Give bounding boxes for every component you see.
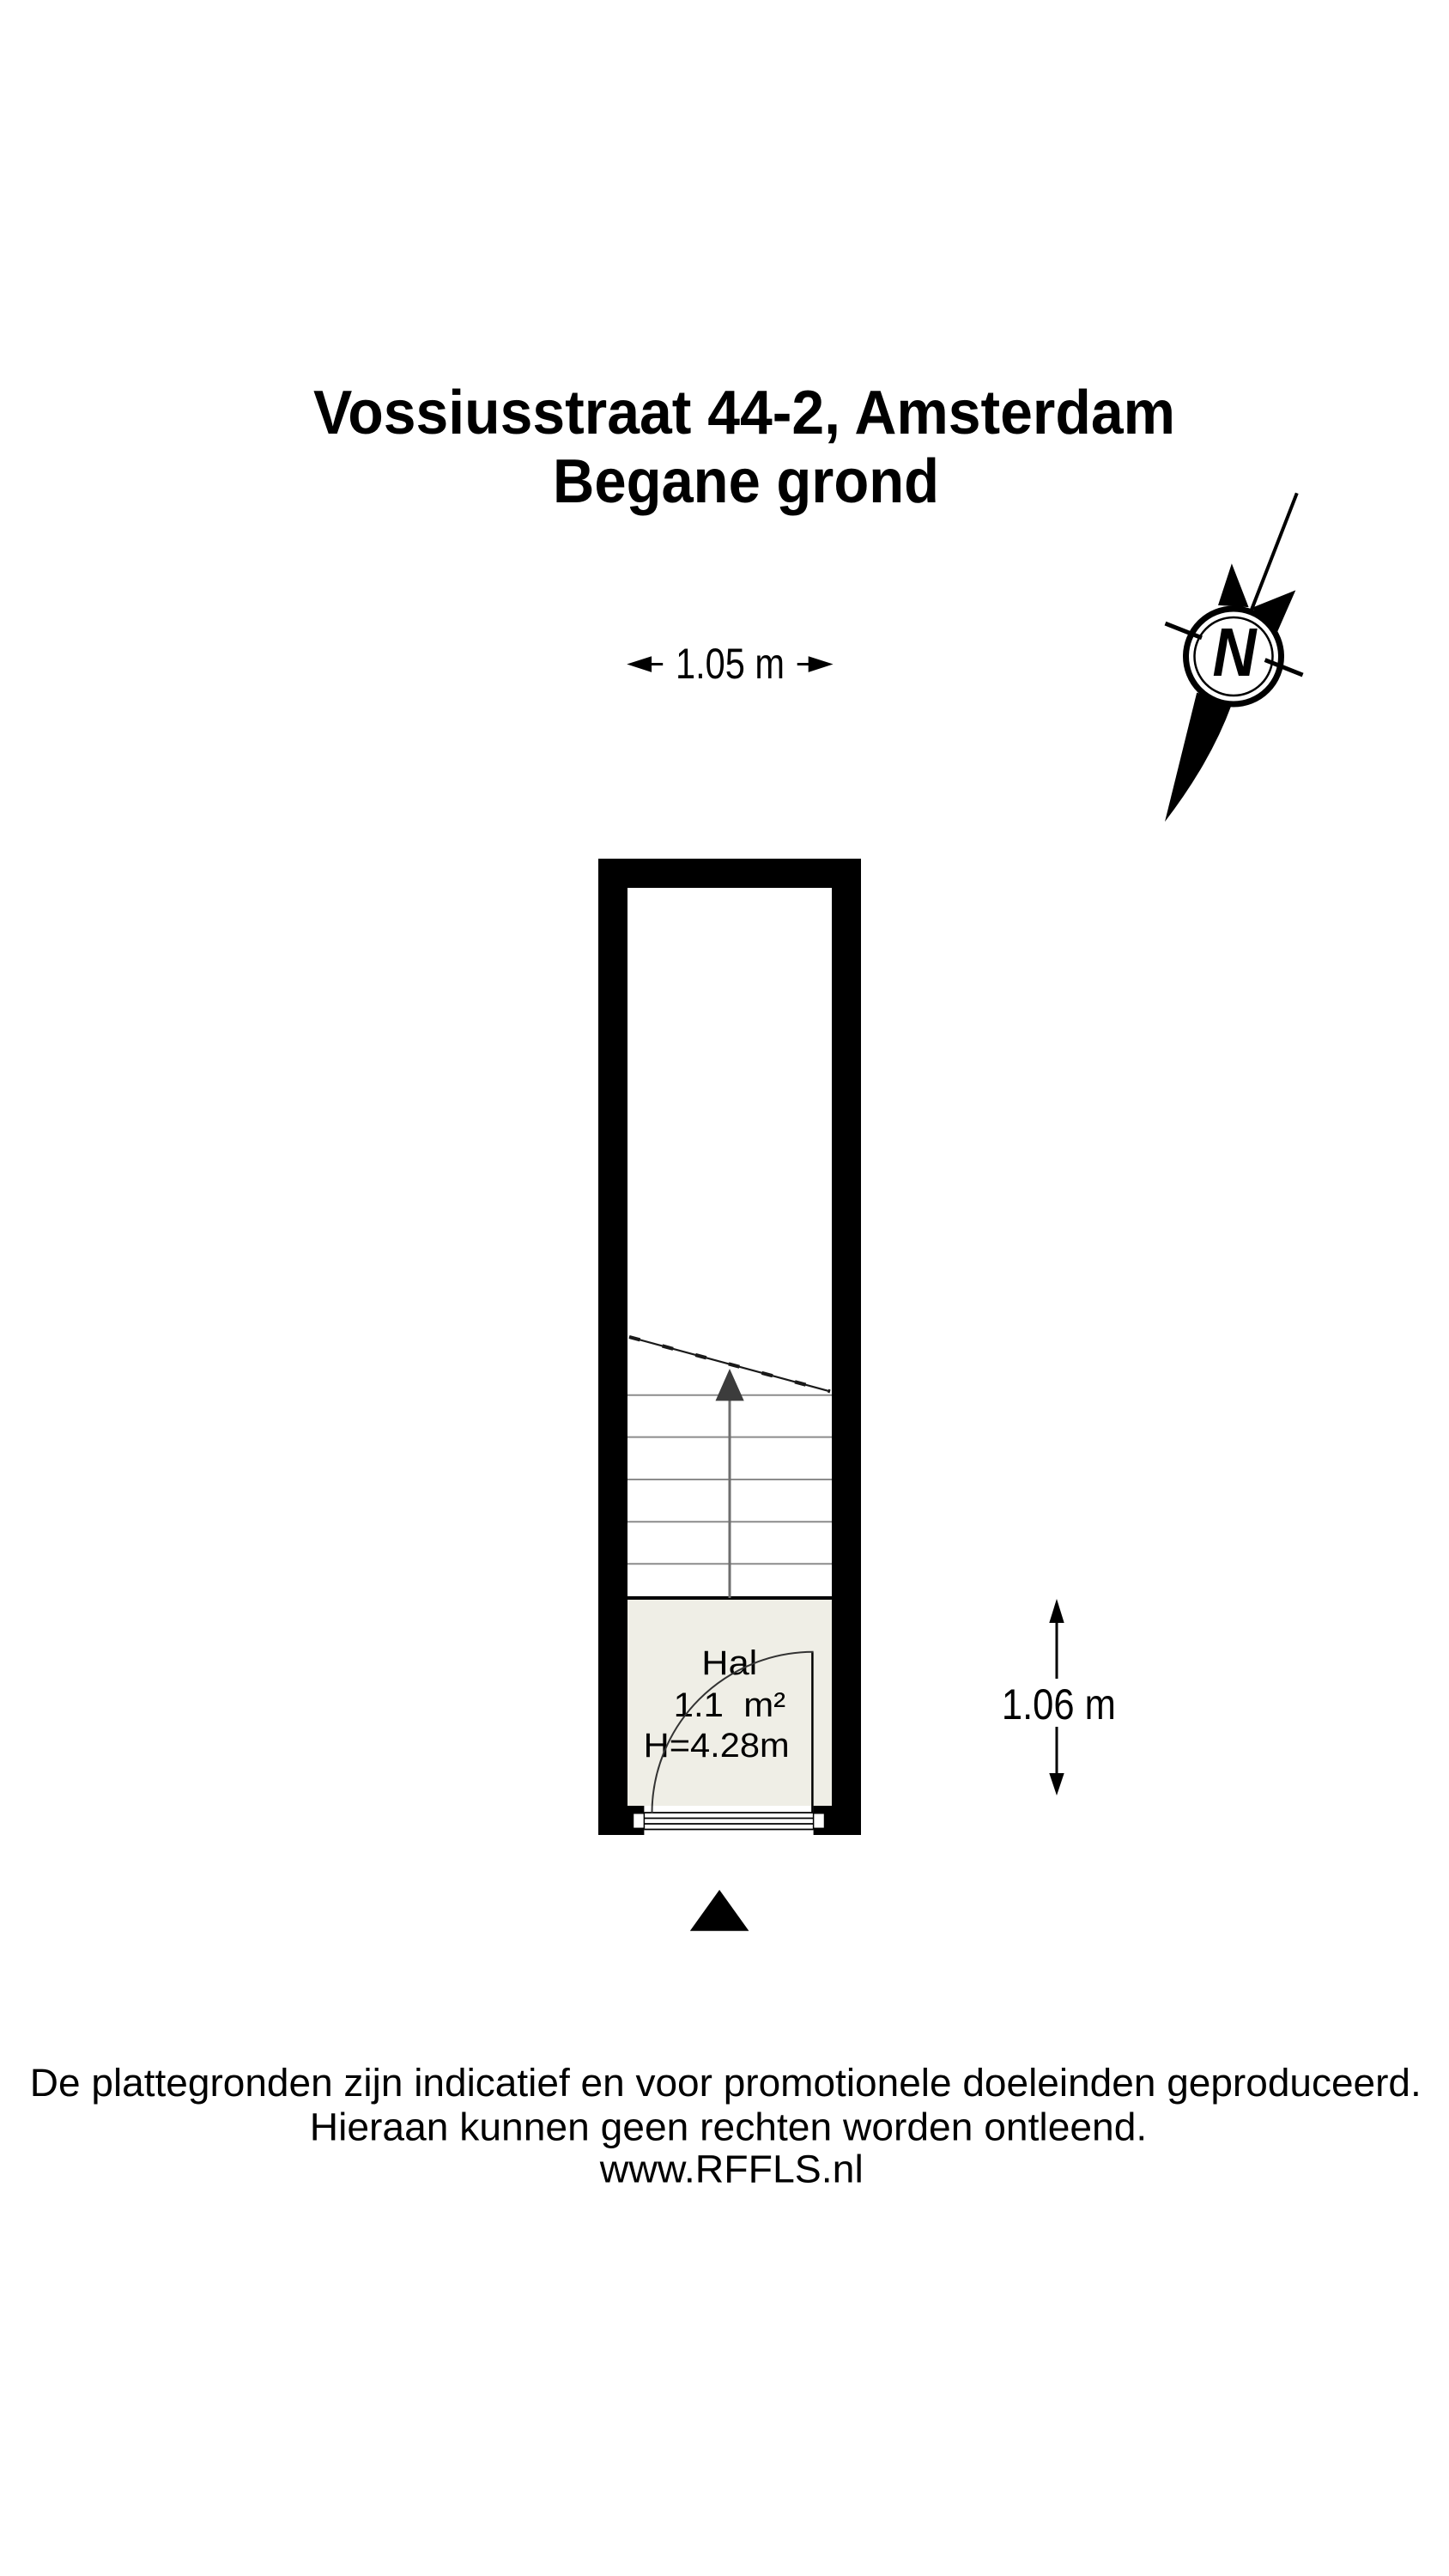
svg-text:1.1 m²: 1.1 m² [674,1686,786,1724]
svg-text:Vossiusstraat 44-2, Amsterdam: Vossiusstraat 44-2, Amsterdam [313,379,1175,447]
svg-text:Hal: Hal [701,1644,757,1682]
svg-text:H=4.28m: H=4.28m [644,1727,790,1765]
svg-text:Hieraan kunnen geen rechten wo: Hieraan kunnen geen rechten worden ontle… [310,2105,1148,2149]
svg-text:www.RFFLS.nl: www.RFFLS.nl [599,2148,864,2191]
svg-text:1.05 m: 1.05 m [676,640,785,688]
svg-text:N: N [1213,614,1258,690]
svg-text:De plattegronden zijn indicati: De plattegronden zijn indicatief en voor… [30,2061,1422,2105]
svg-text:Begane grond: Begane grond [553,447,939,516]
svg-text:1.06 m: 1.06 m [1002,1680,1116,1728]
